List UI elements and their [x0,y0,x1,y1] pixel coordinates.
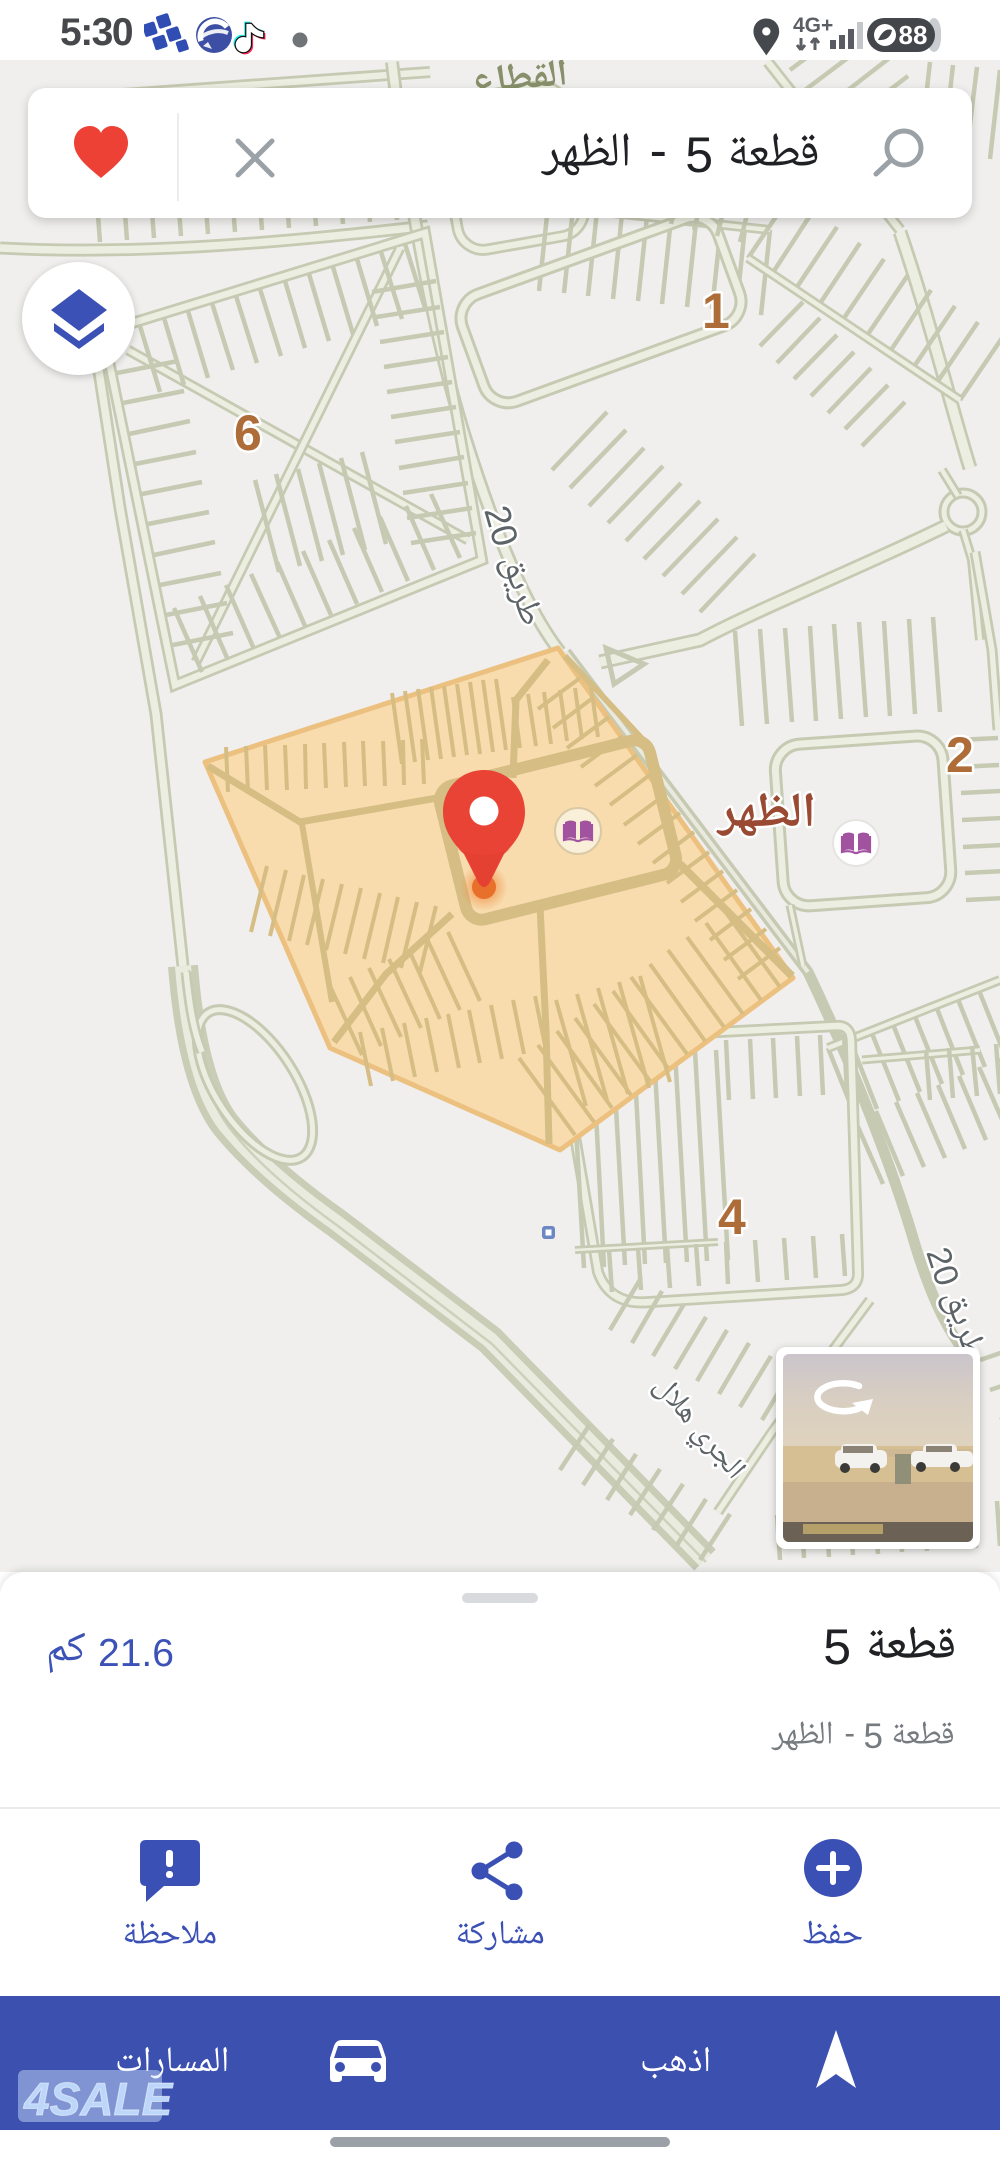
svg-text:-: - [844,1715,855,1751]
svg-text:-: - [650,122,667,180]
svg-text:1: 1 [702,283,730,339]
svg-text:21.6: 21.6 [98,1632,174,1675]
svg-text:2: 2 [946,727,974,783]
svg-text:5: 5 [685,127,713,183]
svg-text:6: 6 [234,405,262,461]
svg-text:4G+: 4G+ [793,14,833,37]
svg-text:5: 5 [864,1717,883,1756]
svg-text:4: 4 [718,1189,746,1245]
svg-text:5: 5 [823,1619,851,1675]
svg-text:88: 88 [899,20,928,50]
